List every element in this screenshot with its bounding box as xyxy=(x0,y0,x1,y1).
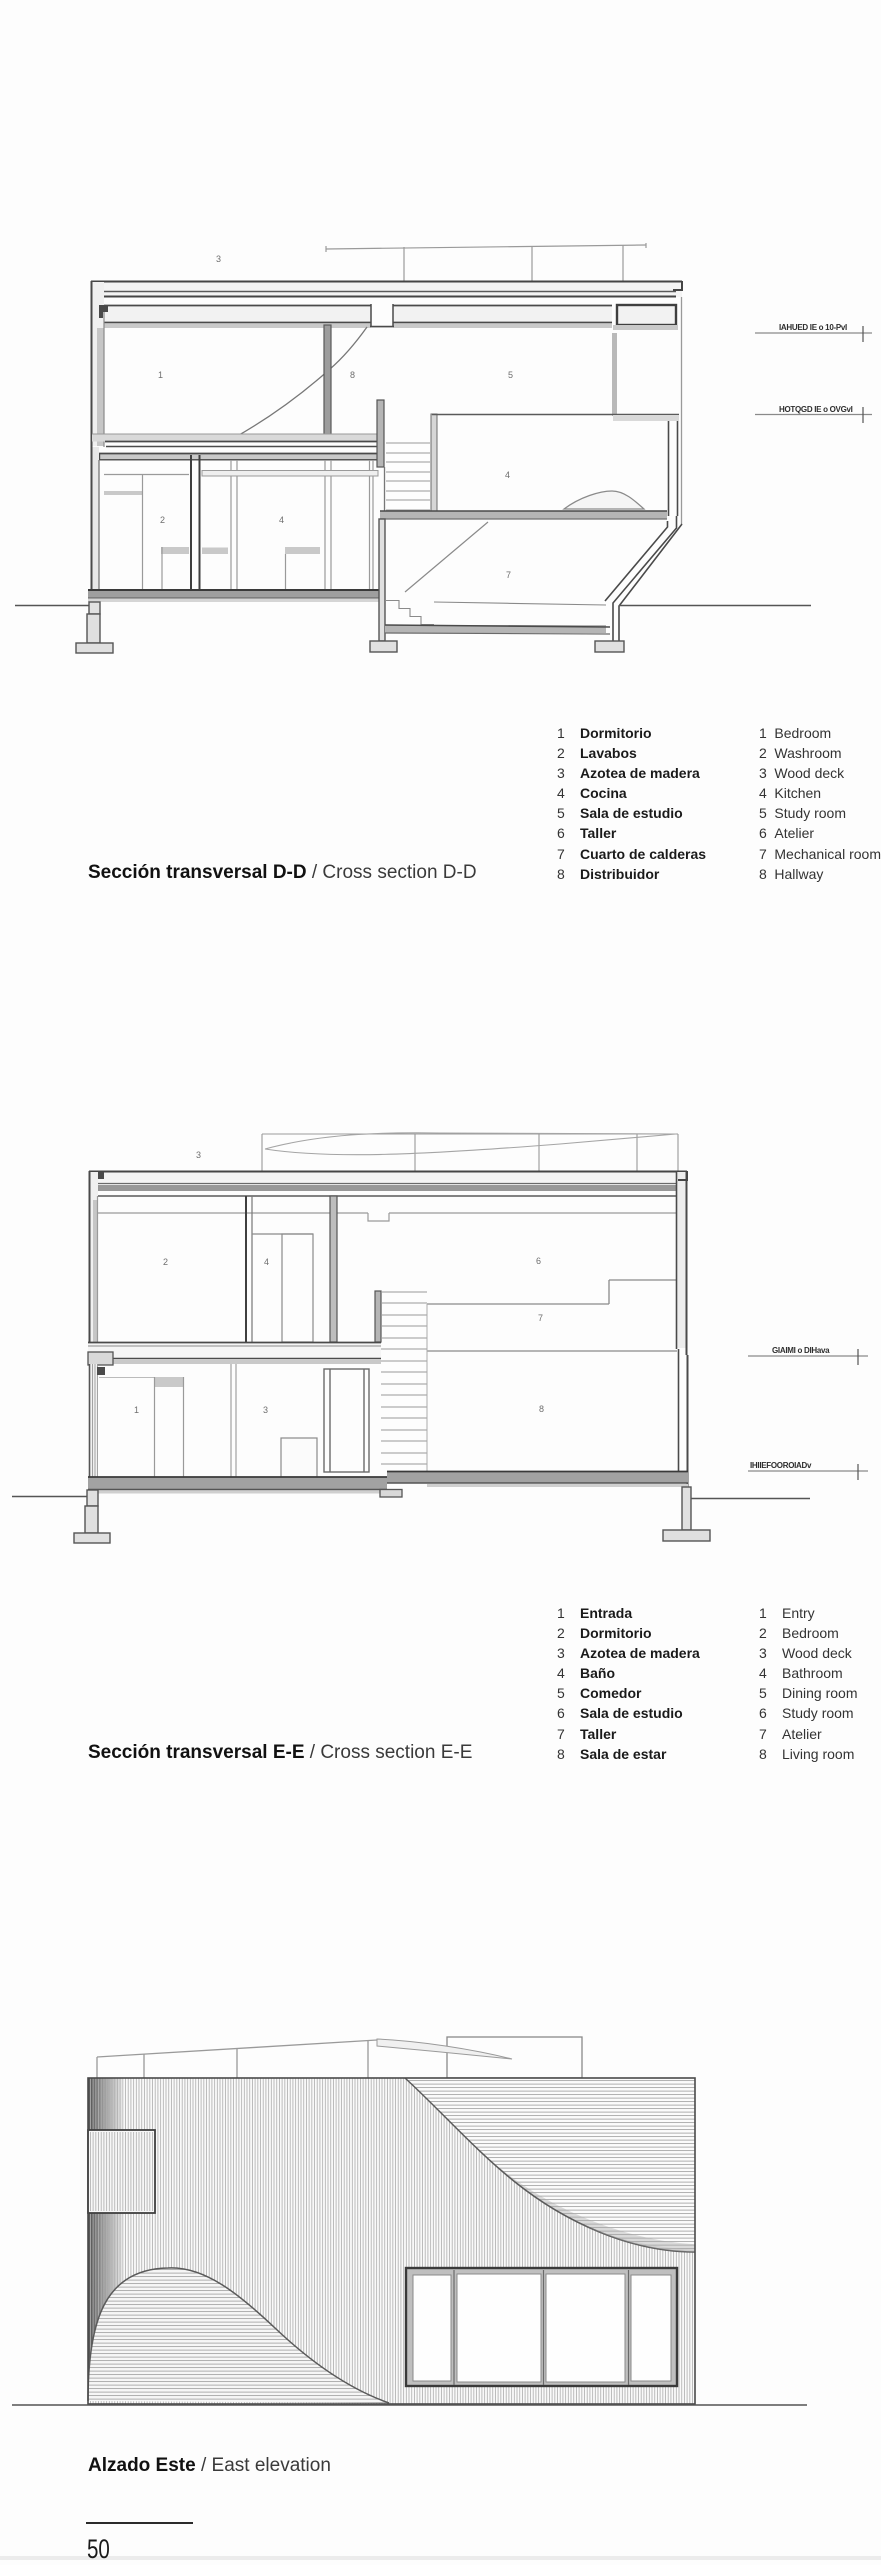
svg-text:8: 8 xyxy=(350,370,355,380)
svg-text:2: 2 xyxy=(160,515,165,525)
svg-text:7: 7 xyxy=(506,570,511,580)
svg-text:IAHUED IE o 10-PvI: IAHUED IE o 10-PvI xyxy=(779,323,847,332)
svg-text:IHIIEFOOROIADv: IHIIEFOOROIADv xyxy=(750,1461,812,1470)
svg-text:1: 1 xyxy=(158,370,163,380)
svg-text:2: 2 xyxy=(163,1257,168,1267)
svg-text:HOTQGD IE o OVGvI: HOTQGD IE o OVGvI xyxy=(779,405,853,414)
svg-text:8: 8 xyxy=(539,1404,544,1414)
svg-text:3: 3 xyxy=(196,1150,201,1160)
svg-text:7: 7 xyxy=(538,1313,543,1323)
svg-text:3: 3 xyxy=(263,1405,268,1415)
svg-text:4: 4 xyxy=(505,470,510,480)
svg-text:4: 4 xyxy=(264,1257,269,1267)
svg-text:4: 4 xyxy=(279,515,284,525)
svg-text:3: 3 xyxy=(216,254,221,264)
svg-text:6: 6 xyxy=(536,1256,541,1266)
svg-text:GIAIMI o DIHava: GIAIMI o DIHava xyxy=(772,1346,830,1355)
svg-text:5: 5 xyxy=(508,370,513,380)
svg-text:1: 1 xyxy=(134,1405,139,1415)
